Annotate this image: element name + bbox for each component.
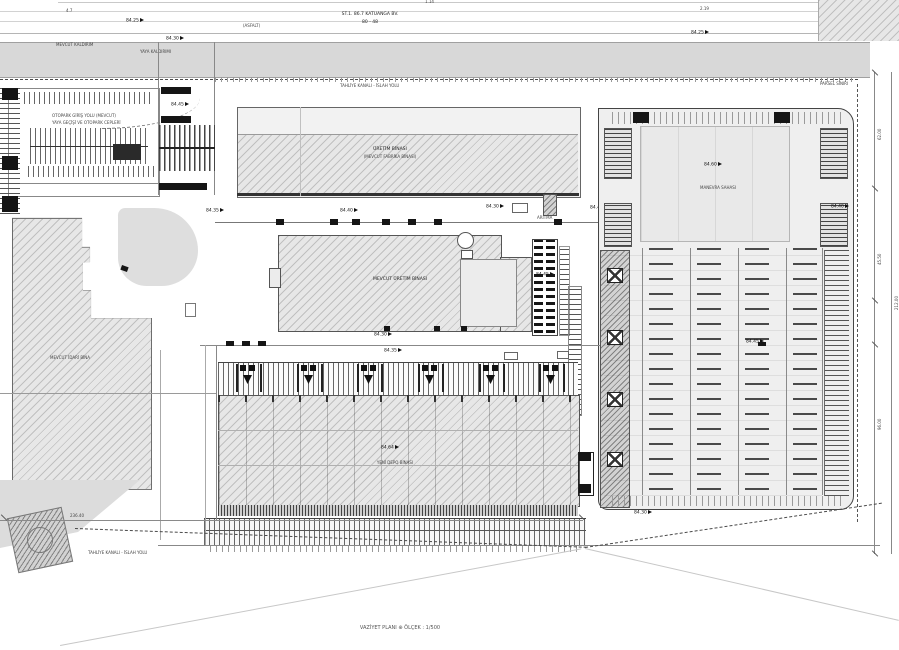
spot-elevation: 84.40 bbox=[831, 204, 849, 210]
gate-road-edge bbox=[158, 42, 159, 195]
dock-pit bbox=[504, 352, 518, 360]
treatment-plant bbox=[543, 194, 557, 216]
car-parking-stalls bbox=[534, 240, 543, 333]
asphalt-note: (ASFALT) bbox=[243, 24, 260, 29]
spot-elevation: 84.25 bbox=[126, 18, 144, 24]
door-mark bbox=[434, 326, 440, 331]
dim-label: 2.19 bbox=[700, 7, 709, 12]
dimension-tick bbox=[872, 185, 878, 191]
service-road-edge bbox=[205, 345, 206, 545]
dock-pit bbox=[557, 351, 569, 359]
dock-door-group bbox=[418, 364, 444, 392]
dimension-label: 62.00 bbox=[878, 129, 883, 140]
long-building-joint-line bbox=[300, 107, 301, 196]
gate-road-edge bbox=[214, 42, 215, 195]
parking-ladder-west bbox=[604, 128, 632, 179]
dock-door-group bbox=[297, 364, 323, 392]
parking-ladder-west bbox=[604, 203, 632, 247]
dimension-label: 45.50 bbox=[878, 254, 883, 265]
warehouse-south-band bbox=[218, 505, 578, 516]
warehouse-label: YENİ DEPO BİNASI bbox=[330, 461, 460, 466]
dimension-tick bbox=[872, 69, 878, 75]
warehouse-column-caps bbox=[218, 395, 578, 402]
admin-building-label: MEVCUT İDARİ BİNA bbox=[20, 356, 120, 361]
spot-elevation: 84.30 bbox=[166, 36, 184, 42]
road-name: ST.1. 86.7 KATUANGA BV. bbox=[310, 12, 430, 17]
center-building-bump bbox=[269, 268, 281, 288]
arrow-mark bbox=[758, 342, 766, 346]
road-lane-line bbox=[58, 2, 899, 3]
door-mark bbox=[258, 341, 266, 346]
trailer-parking-column bbox=[738, 248, 775, 495]
dim-label: 1.14 bbox=[425, 0, 434, 5]
boundary-extension-line bbox=[585, 548, 899, 621]
parking-ladder-east bbox=[820, 203, 848, 247]
gate-grid-divider bbox=[159, 147, 215, 149]
canal-label-top: TAHLİYE KANALI - İSLAH YOLU bbox=[340, 84, 399, 89]
service-road-edge bbox=[160, 350, 161, 540]
canal-label-bottom: TAHLİYE KANALI - İSLAH YOLU bbox=[88, 551, 147, 556]
door-mark bbox=[276, 219, 284, 225]
long-building-inner-line bbox=[238, 134, 578, 135]
road-name-2: 80 - 48 bbox=[330, 20, 410, 25]
yard-lane-line bbox=[822, 248, 823, 495]
door-mark bbox=[382, 219, 390, 225]
road-tick-strip bbox=[210, 546, 580, 552]
parking-row bbox=[28, 166, 156, 177]
ramp-block bbox=[579, 484, 591, 493]
door-mark bbox=[226, 341, 234, 346]
compass-icon: ⊕ bbox=[398, 625, 402, 631]
long-reference-line bbox=[0, 393, 216, 394]
yard-open-area bbox=[640, 126, 790, 242]
spot-elevation: 84.60 bbox=[704, 162, 722, 168]
small-dark-structure bbox=[113, 144, 141, 160]
dimension-tick bbox=[872, 297, 878, 303]
offsite-hatch-corner bbox=[818, 0, 899, 41]
long-building-south-wall bbox=[237, 193, 579, 196]
dimension-line bbox=[874, 72, 875, 554]
parcel-note: PARSEL SINIRI bbox=[820, 82, 848, 87]
trailer-parking-column bbox=[786, 248, 823, 495]
dock-door-group bbox=[539, 364, 565, 392]
spot-elevation: 84.45 bbox=[171, 102, 189, 108]
landscape-patch bbox=[118, 208, 198, 286]
edge-dark-block bbox=[2, 88, 18, 100]
retention-pond bbox=[7, 507, 73, 573]
dimension-line bbox=[891, 72, 892, 554]
door-mark bbox=[434, 219, 442, 225]
spot-elevation: 84.30 bbox=[374, 332, 392, 338]
spot-elevation: 84.25 bbox=[691, 30, 709, 36]
door-mark bbox=[352, 219, 360, 225]
long-building-label-2: (MEVCUT FABRİKA BİNASI) bbox=[330, 155, 450, 160]
spot-elevation: 84.45 bbox=[536, 272, 554, 278]
plan-title-block: VAZİYET PLANI ⊕ ÖLÇEK : 1/500 bbox=[300, 626, 500, 632]
center-building-inner-room bbox=[460, 259, 517, 327]
door-mark bbox=[408, 219, 416, 225]
door-mark bbox=[330, 219, 338, 225]
edge-parking-comb bbox=[824, 250, 849, 496]
dock-door-group bbox=[236, 364, 262, 392]
door-mark bbox=[242, 341, 250, 346]
trailer-parking-column bbox=[642, 248, 679, 495]
yard-gate-mark bbox=[774, 112, 790, 123]
door-mark bbox=[384, 326, 390, 331]
long-building-hatch bbox=[238, 134, 578, 194]
dimension-label: 212.00 bbox=[895, 296, 899, 310]
dimension-line-long bbox=[0, 520, 583, 521]
parking-ladder-east bbox=[820, 128, 848, 179]
sidewalk-tick-strip bbox=[215, 77, 855, 82]
yard-bottom-strip bbox=[612, 496, 844, 506]
spot-elevation: 84.64 bbox=[381, 445, 399, 451]
main-road-band bbox=[0, 42, 870, 78]
lot-edge-line bbox=[8, 183, 158, 184]
utility-box bbox=[512, 203, 528, 213]
yard-gate-mark bbox=[633, 112, 649, 123]
dock-door-group bbox=[479, 364, 505, 392]
door-mark bbox=[461, 326, 467, 331]
plan-scale: ÖLÇEK : 1/500 bbox=[404, 625, 440, 631]
trailer-parking-column bbox=[690, 248, 727, 495]
silo-circle bbox=[457, 232, 474, 249]
parcel-boundary-east bbox=[857, 84, 858, 522]
gate-barrier bbox=[159, 183, 207, 190]
dimension-label: 236.40 bbox=[70, 514, 84, 519]
long-building-label-1: ÜRETİM BİNASI bbox=[330, 147, 450, 152]
utility-shaft bbox=[185, 303, 196, 317]
gate-barrier bbox=[161, 116, 191, 123]
spot-elevation: 84.40 bbox=[340, 208, 358, 214]
ramp-block bbox=[579, 452, 591, 461]
dim-label: 4.7 bbox=[66, 9, 72, 14]
dimension-tick bbox=[872, 341, 878, 347]
road-lane-line bbox=[0, 11, 899, 12]
spot-elevation: 84.30 bbox=[634, 510, 652, 516]
dimension-tick bbox=[872, 550, 878, 556]
car-parking-stalls bbox=[546, 240, 555, 333]
pond-circle bbox=[25, 525, 56, 556]
curb-note-1: MEVCUT KALDIRIM bbox=[56, 43, 93, 48]
door-mark bbox=[554, 219, 562, 225]
edge-dark-block bbox=[2, 156, 18, 170]
plan-title: VAZİYET PLANI bbox=[360, 625, 397, 631]
warehouse-dock-band bbox=[218, 362, 578, 397]
dock-door-group bbox=[357, 364, 383, 392]
treatment-label: ARITMA bbox=[537, 216, 552, 221]
edge-dark-block bbox=[2, 196, 18, 212]
site-plan-canvas: 4.7 1.14 2.19 ST.1. 86.7 KATUANGA BV. 80… bbox=[0, 0, 899, 650]
silo-base bbox=[461, 250, 473, 259]
trailer-comb-south bbox=[204, 518, 586, 546]
warehouse-west-line bbox=[216, 345, 217, 520]
dimension-label: 96.00 bbox=[878, 419, 883, 430]
warehouse-body bbox=[218, 395, 580, 507]
spot-elevation: 84.35 bbox=[384, 348, 402, 354]
center-building-label: MEVCUT ÜRETİM BİNASI bbox=[340, 277, 460, 282]
warehouse-grid-line bbox=[218, 430, 578, 431]
spot-elevation: 84.30 bbox=[486, 204, 504, 210]
gate-barrier bbox=[161, 87, 191, 94]
road-edge-line bbox=[0, 33, 899, 34]
yard-label: MANEVRA SAHASI bbox=[668, 186, 768, 191]
trailer-comb-divider bbox=[204, 530, 586, 531]
spot-elevation: 84.35 bbox=[206, 208, 224, 214]
curb-note-2: YAYA KALDIRIMI bbox=[140, 50, 171, 55]
